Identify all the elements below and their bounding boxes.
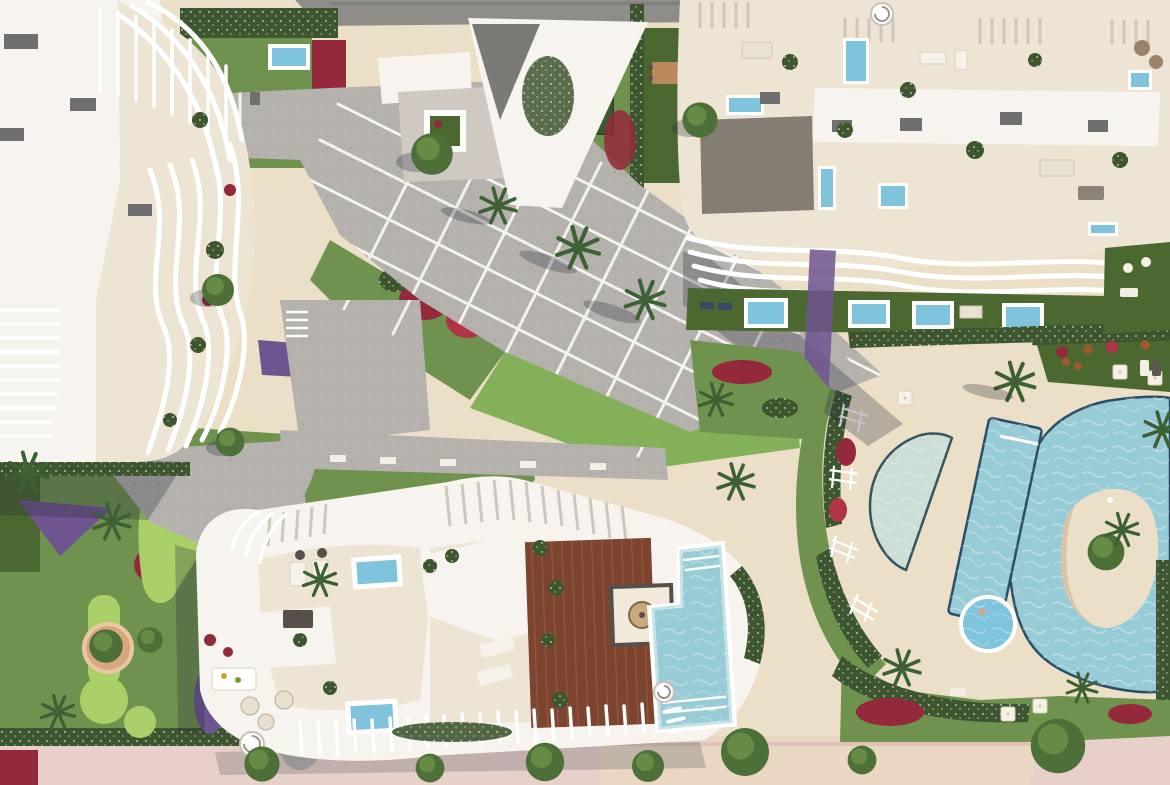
left-residential-building [0,0,260,462]
topleft-hedge [180,8,338,38]
topleft-garden-pool [268,44,310,70]
circular-planter [84,624,132,672]
scene-canvas [0,0,1170,785]
roof-core [813,88,1160,146]
roof-hedge [522,56,574,136]
right-edge-lawn [1103,242,1170,334]
kids-pool [961,597,1015,651]
east-hedge [1156,560,1170,700]
aerial-render [0,0,1170,785]
